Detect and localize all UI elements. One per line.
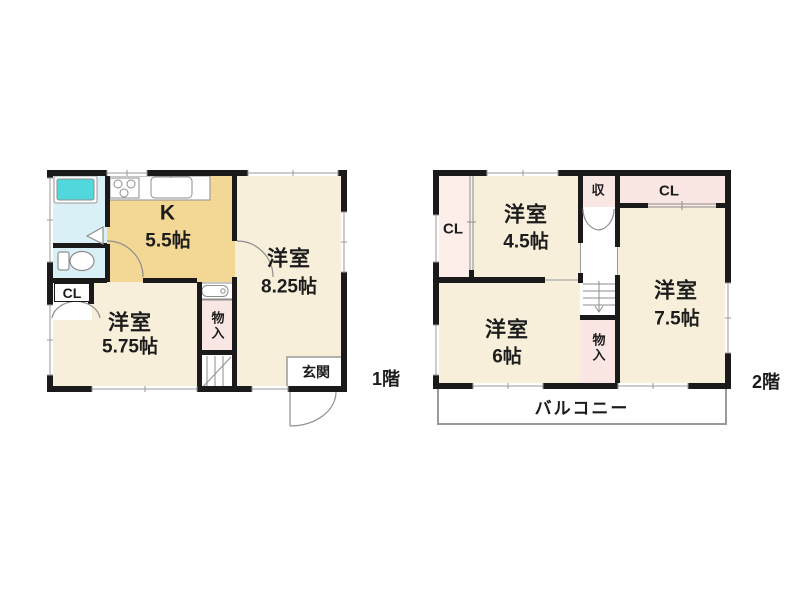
window (107, 170, 147, 176)
toilet-icon (58, 252, 94, 271)
floor1-drawing (47, 170, 347, 432)
entrance-label: 玄関 (302, 365, 330, 379)
stove-icon (110, 178, 139, 198)
window (725, 283, 731, 353)
room45-label: 洋室 (504, 205, 548, 226)
window (341, 212, 347, 272)
floor2-plan: CL 洋室 4.5帖 収 CL 洋室 7.5帖 洋室 6帖 物入 (433, 170, 731, 389)
room575-label: 洋室 (108, 313, 152, 334)
closet-label-box: CL (54, 283, 90, 302)
kitchen-size: 5.5帖 (145, 232, 190, 251)
room45-size: 4.5帖 (503, 233, 548, 252)
bathtub-icon (54, 176, 97, 203)
storage-upper-label: 収 (591, 184, 604, 197)
floor1-name: 1階 (372, 365, 400, 391)
kitchen-label: K (160, 203, 176, 224)
room6-size: 6帖 (492, 348, 522, 367)
floorplan-image: CL K 5.5帖 洋室 8.25帖 洋室 5.75帖 物入 玄関 (0, 0, 800, 600)
window (248, 170, 338, 176)
closet-left-label: CL (443, 222, 463, 237)
kitchen-counter-icon (107, 173, 210, 200)
room6-label: 洋室 (485, 320, 529, 341)
storage-lower-label: 物入 (592, 333, 605, 363)
sink-icon (151, 173, 192, 198)
closet-label: CL (63, 285, 82, 301)
room575-size: 5.75帖 (102, 338, 158, 357)
room75-size: 7.5帖 (654, 310, 699, 329)
balcony: バルコニー (437, 389, 727, 425)
window (433, 215, 439, 262)
balcony-label: バルコニー (535, 394, 630, 419)
floor1-plan: CL K 5.5帖 洋室 8.25帖 洋室 5.75帖 物入 玄関 (47, 170, 347, 392)
window (47, 178, 53, 262)
washbasin-icon (199, 283, 233, 299)
room825-label: 洋室 (267, 249, 311, 270)
closet-right-label: CL (659, 184, 679, 199)
storage-label: 物入 (211, 311, 224, 341)
floor2-name: 2階 (752, 368, 780, 394)
room825-size: 8.25帖 (261, 278, 317, 297)
window (433, 325, 439, 375)
entrance-door-arc (290, 392, 336, 426)
window (252, 386, 288, 392)
window (487, 170, 558, 176)
room75-label: 洋室 (654, 281, 698, 302)
window (92, 386, 197, 392)
